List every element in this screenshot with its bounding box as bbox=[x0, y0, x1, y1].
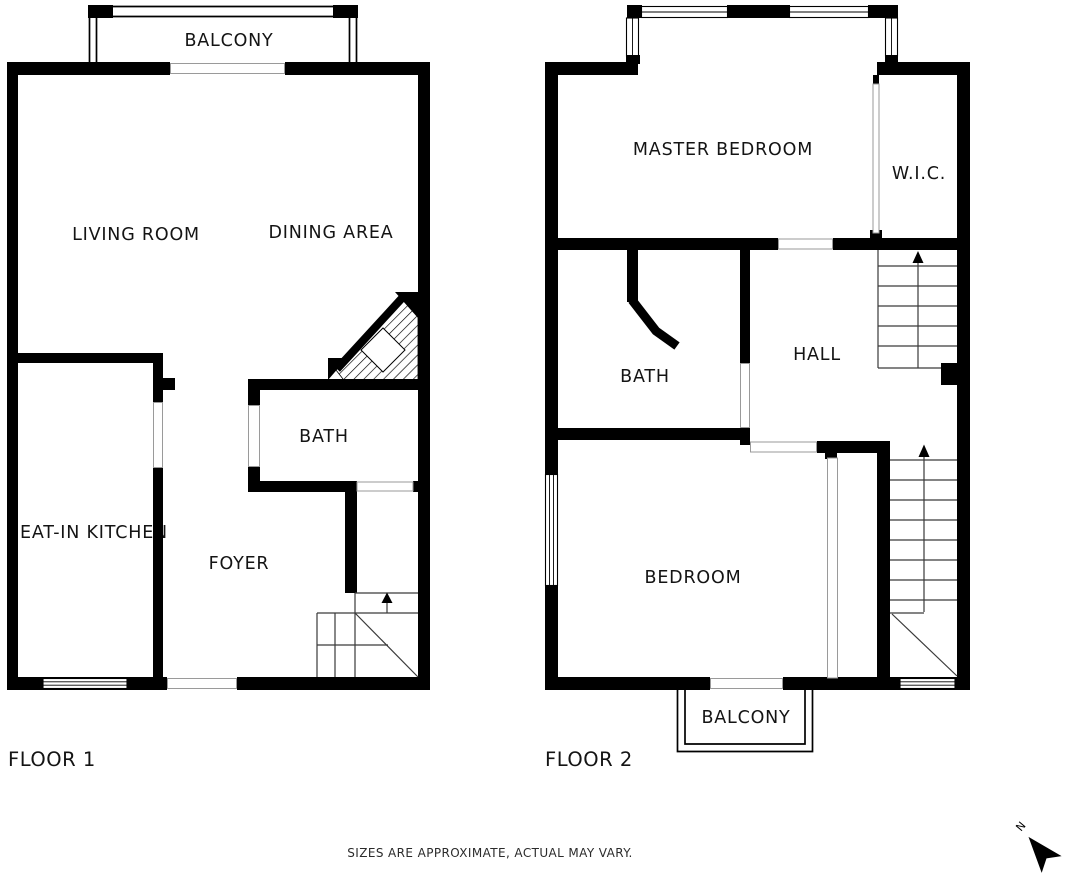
floor1-kitchen-window bbox=[37, 677, 133, 690]
floor2-bay-windows bbox=[626, 5, 898, 64]
fireplace bbox=[328, 292, 418, 388]
closet-sliding-door bbox=[828, 458, 838, 678]
floor2-stair-window bbox=[900, 679, 955, 689]
floor2-bedroom-window bbox=[546, 475, 558, 586]
floor2-stairs-lower bbox=[890, 445, 957, 677]
floor2-balcony-railing bbox=[678, 690, 813, 752]
compass-arrow bbox=[1019, 829, 1062, 873]
compass: N bbox=[1002, 802, 1066, 877]
floor1-title: FLOOR 1 bbox=[8, 748, 96, 771]
floor2-plan bbox=[540, 0, 980, 770]
floorplan-page: BALCONY LIVING ROOM DINING AREA BATH EAT… bbox=[0, 0, 1066, 877]
bath-door-swing bbox=[632, 300, 677, 346]
stairs-up-arrow-f2-upper bbox=[913, 251, 924, 263]
stairs-up-arrow-f2-lower bbox=[919, 445, 930, 458]
floor1-balcony-railing bbox=[88, 5, 358, 62]
floor2-stairs-upper bbox=[878, 250, 957, 368]
disclaimer-text: SIZES ARE APPROXIMATE, ACTUAL MAY VARY. bbox=[347, 846, 632, 860]
floor2-title: FLOOR 2 bbox=[545, 748, 633, 771]
floor1-plan bbox=[0, 0, 440, 770]
floor2-door-openings bbox=[711, 84, 880, 689]
compass-north-label: N bbox=[1013, 819, 1028, 834]
floor2-walls bbox=[545, 62, 970, 690]
stairs-up-arrow-f1 bbox=[382, 593, 393, 604]
floor1-stairs bbox=[317, 593, 418, 678]
